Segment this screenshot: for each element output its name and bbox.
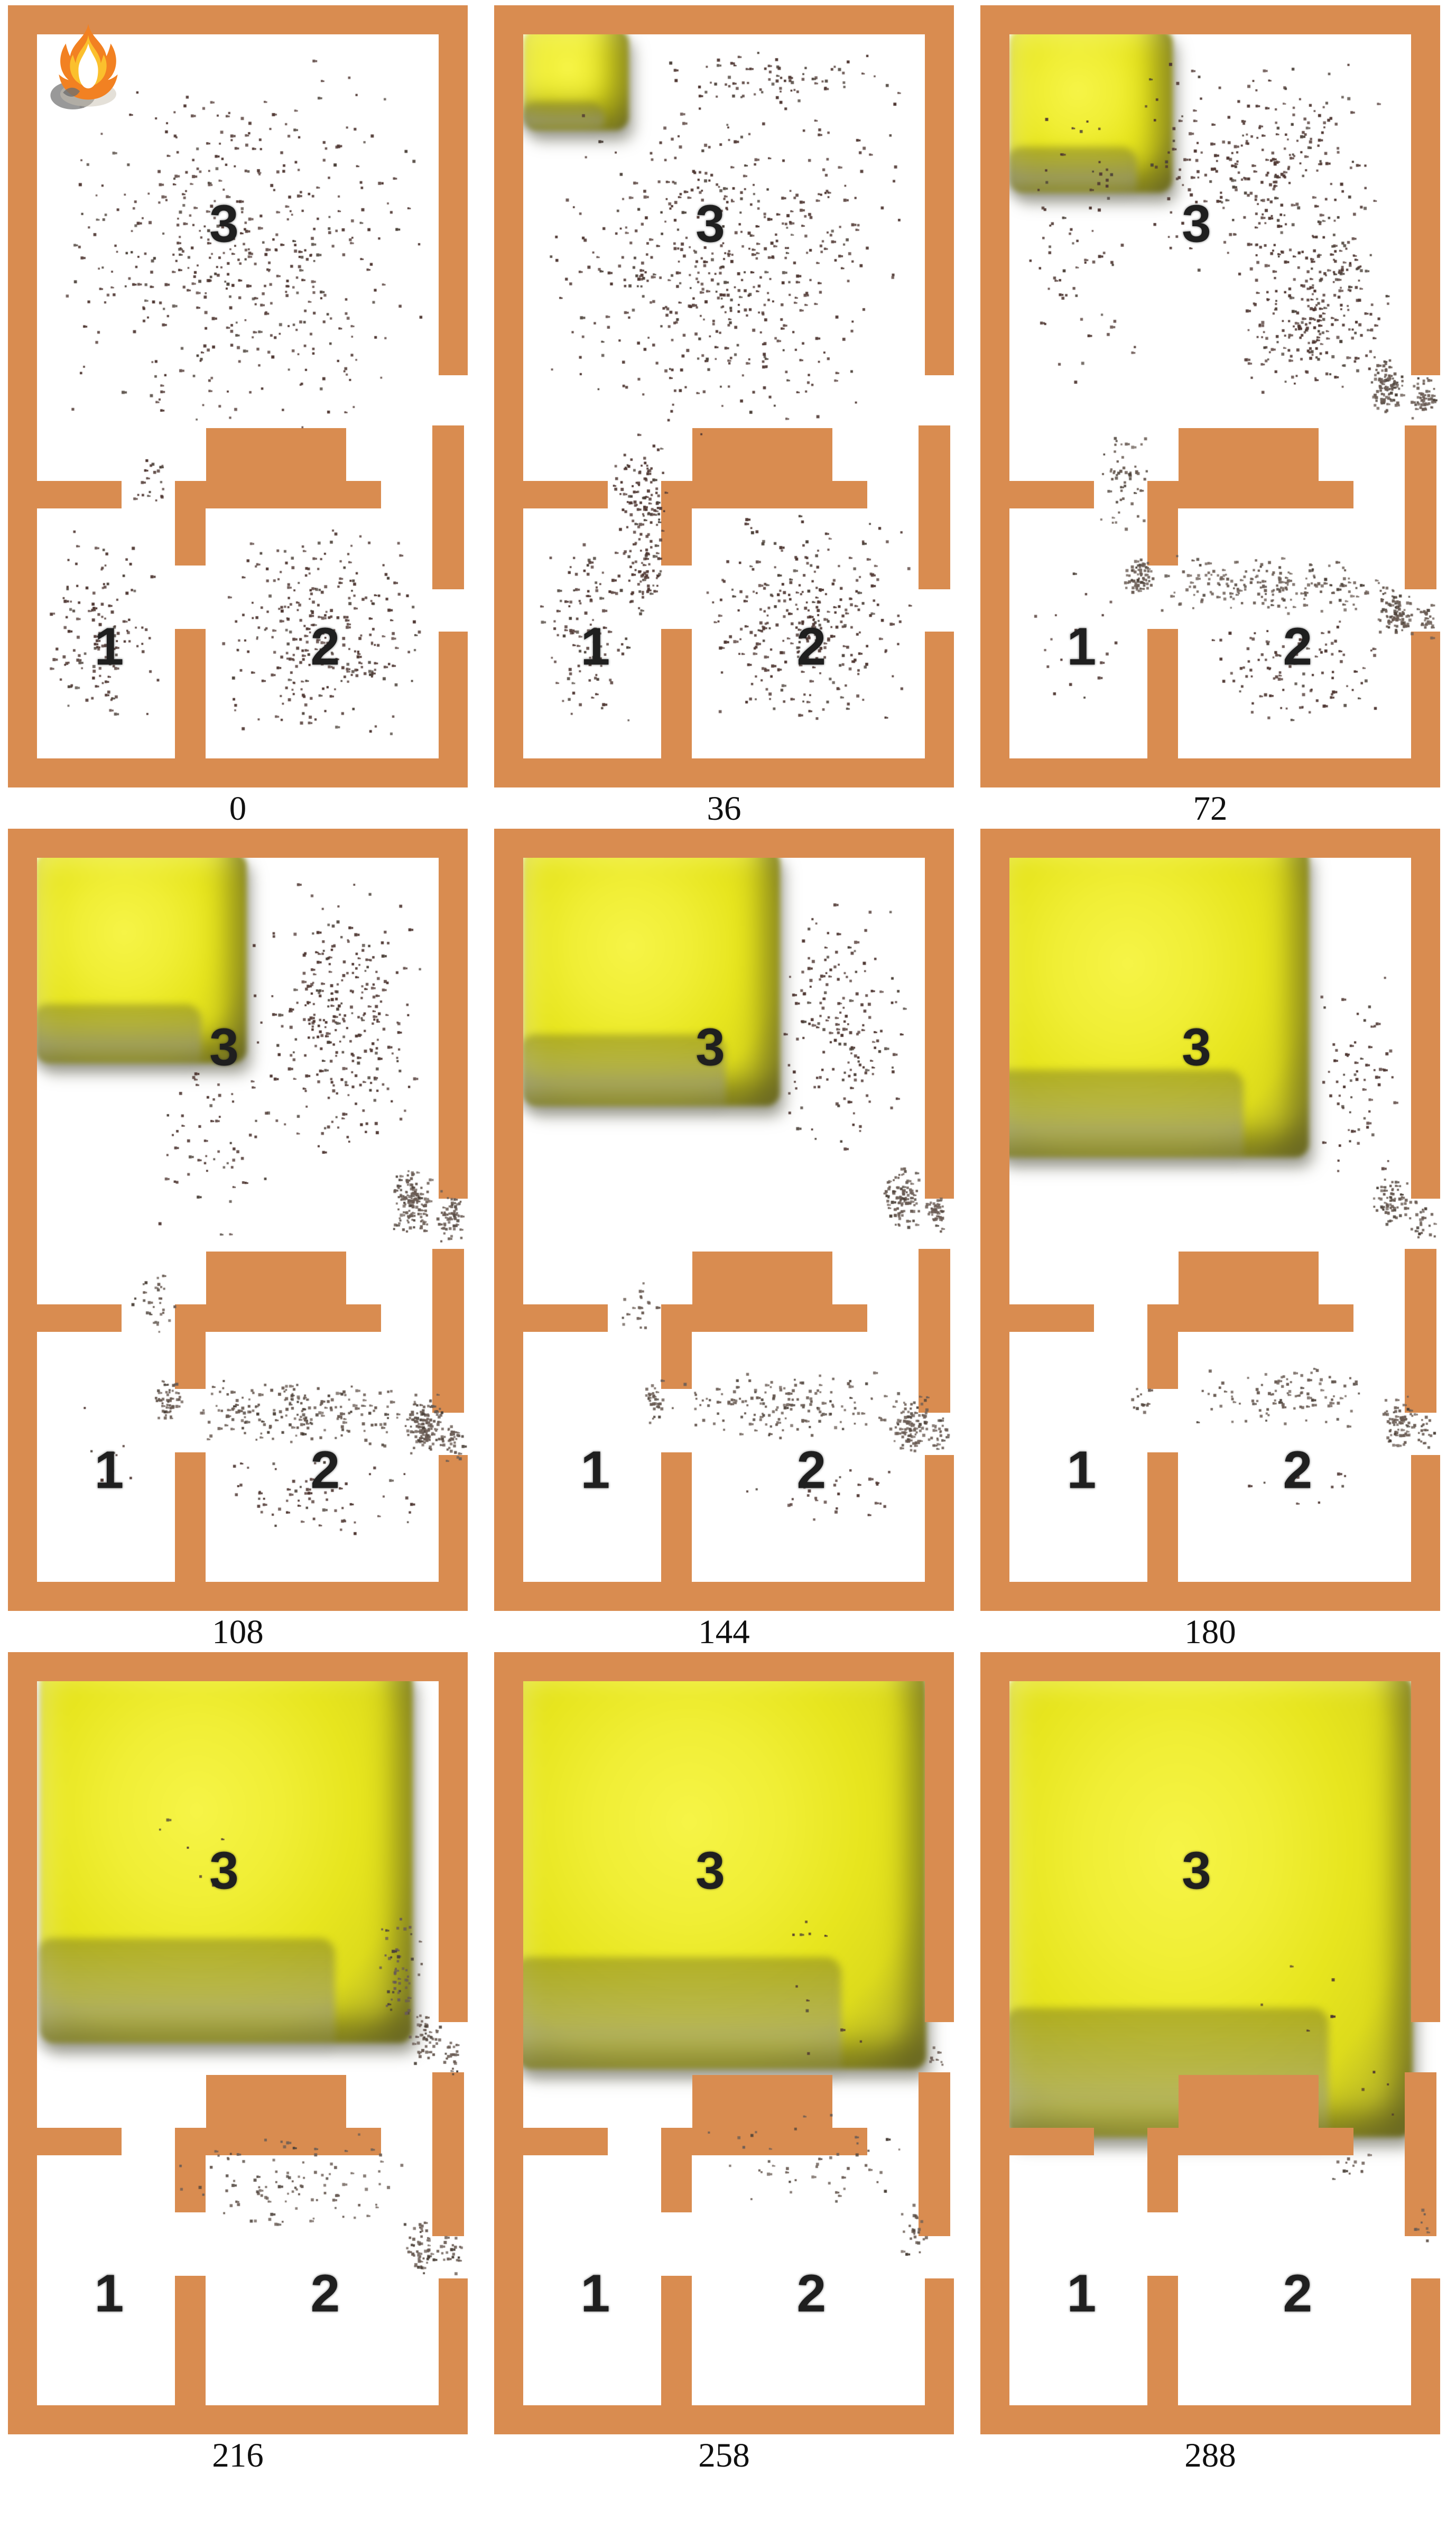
sim-frame-t288: 312288 [980, 1652, 1440, 2476]
room-1-label: 1 [95, 1440, 124, 1500]
sim-frame-t72: 31272 [980, 5, 1440, 829]
room-1-label: 1 [581, 616, 610, 677]
fire-icon [46, 21, 131, 114]
occupant-dots [980, 1652, 1440, 2434]
time-step-label: 108 [8, 1611, 468, 1652]
occupant-dots [8, 829, 468, 1611]
room-2-label: 2 [796, 1440, 826, 1500]
room-2-label: 2 [796, 616, 826, 677]
floorplan-panel: 312 [494, 829, 954, 1611]
time-step-label: 258 [494, 2434, 954, 2476]
time-step-label: 72 [980, 787, 1440, 829]
room-2-label: 2 [1283, 616, 1312, 677]
sim-frame-t216: 312216 [8, 1652, 468, 2476]
occupant-dots [980, 5, 1440, 787]
room-2-label: 2 [310, 1440, 340, 1500]
room-2-label: 2 [796, 2263, 826, 2324]
occupant-dots [494, 1652, 954, 2434]
room-3-label: 3 [209, 194, 239, 255]
floorplan-panel: 312 [8, 5, 468, 787]
time-step-label: 180 [980, 1611, 1440, 1652]
occupant-dots [494, 5, 954, 787]
time-step-label: 0 [8, 787, 468, 829]
room-3-label: 3 [695, 1841, 725, 1902]
room-1-label: 1 [581, 1440, 610, 1500]
floorplan-panel: 312 [980, 5, 1440, 787]
room-3-label: 3 [695, 194, 725, 255]
time-step-label: 216 [8, 2434, 468, 2476]
room-2-label: 2 [310, 616, 340, 677]
room-1-label: 1 [1067, 616, 1097, 677]
room-3-label: 3 [1182, 1841, 1211, 1902]
room-3-label: 3 [1182, 194, 1211, 255]
room-3-label: 3 [209, 1017, 239, 1078]
room-1-label: 1 [95, 2263, 124, 2324]
sim-frame-t180: 312180 [980, 829, 1440, 1652]
room-3-label: 3 [1182, 1017, 1211, 1078]
room-1-label: 1 [95, 616, 124, 677]
floorplan-panel: 312 [494, 5, 954, 787]
floorplan-panel: 312 [8, 829, 468, 1611]
occupant-dots [980, 829, 1440, 1611]
floorplan-panel: 312 [980, 1652, 1440, 2434]
occupant-dots [8, 1652, 468, 2434]
room-2-label: 2 [310, 2263, 340, 2324]
room-1-label: 1 [581, 2263, 610, 2324]
occupant-dots [8, 5, 468, 787]
room-2-label: 2 [1283, 1440, 1312, 1500]
simulation-grid: 3120312363127231210831214431218031221631… [0, 0, 1456, 2476]
sim-frame-t36: 31236 [494, 5, 954, 829]
floorplan-panel: 312 [494, 1652, 954, 2434]
sim-frame-t144: 312144 [494, 829, 954, 1652]
sim-frame-t258: 312258 [494, 1652, 954, 2476]
time-step-label: 144 [494, 1611, 954, 1652]
occupant-dots [494, 829, 954, 1611]
room-3-label: 3 [209, 1841, 239, 1902]
room-2-label: 2 [1283, 2263, 1312, 2324]
floorplan-panel: 312 [980, 829, 1440, 1611]
room-3-label: 3 [695, 1017, 725, 1078]
sim-frame-t108: 312108 [8, 829, 468, 1652]
room-1-label: 1 [1067, 1440, 1097, 1500]
floorplan-panel: 312 [8, 1652, 468, 2434]
sim-frame-t0: 3120 [8, 5, 468, 829]
time-step-label: 36 [494, 787, 954, 829]
time-step-label: 288 [980, 2434, 1440, 2476]
room-1-label: 1 [1067, 2263, 1097, 2324]
